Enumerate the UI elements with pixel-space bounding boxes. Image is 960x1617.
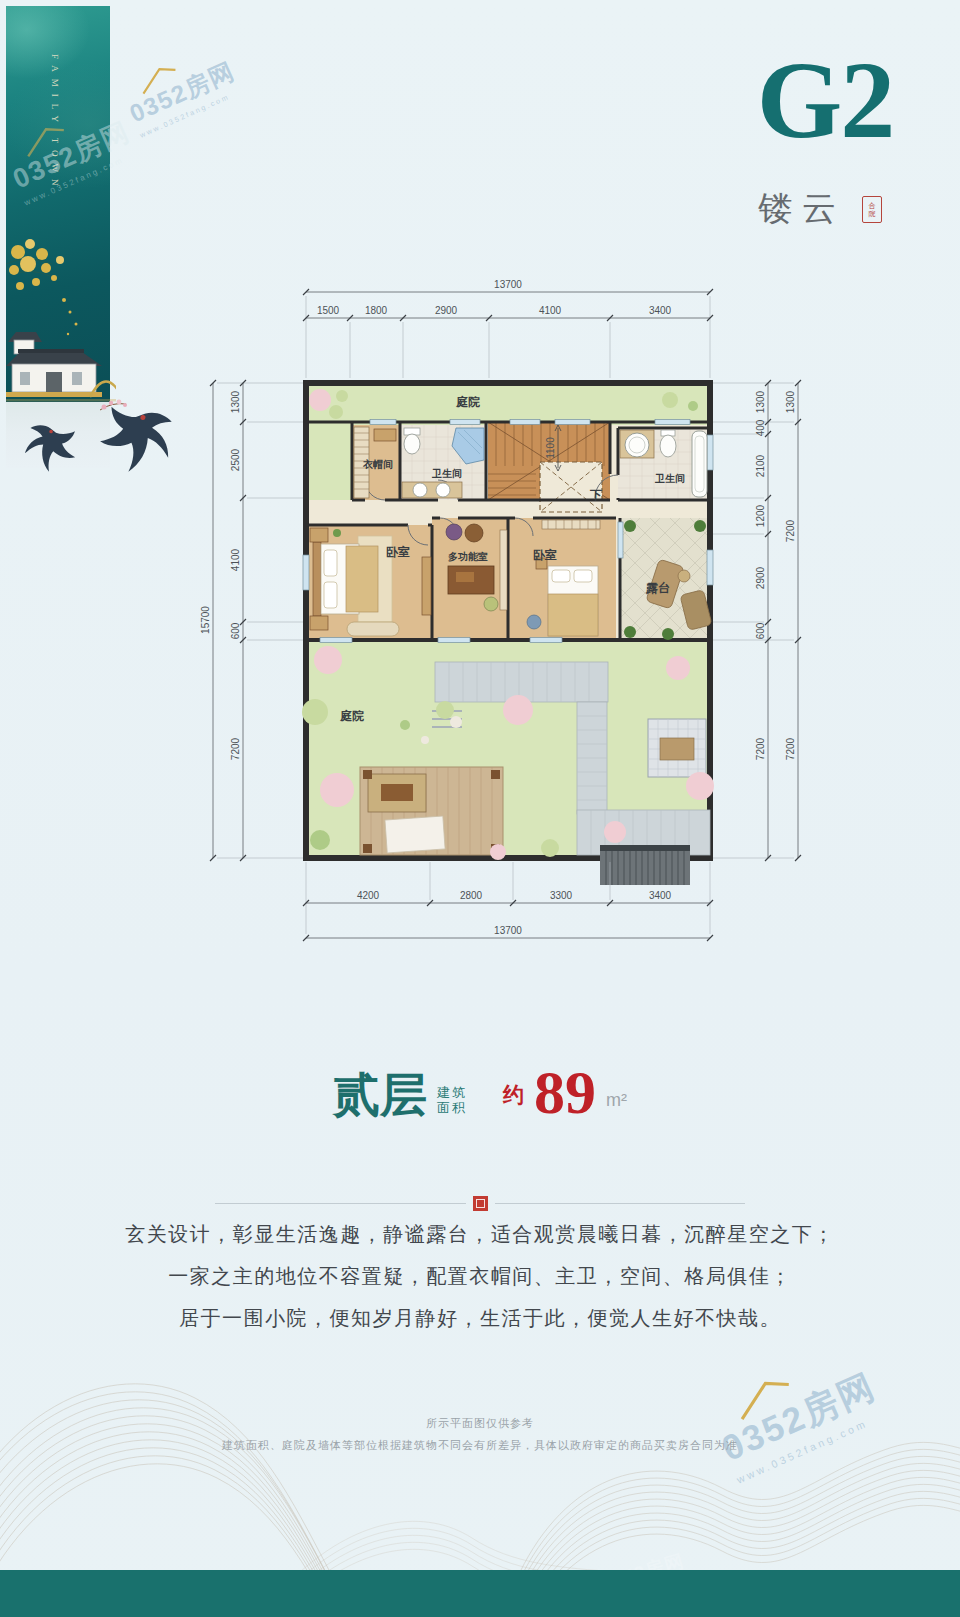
svg-text:2900: 2900 bbox=[435, 305, 458, 316]
section-divider bbox=[215, 1196, 745, 1211]
floor-label: 贰层 bbox=[333, 1073, 427, 1118]
swallow-icon bbox=[95, 403, 177, 479]
svg-text:13700: 13700 bbox=[494, 279, 522, 290]
svg-text:600: 600 bbox=[230, 622, 241, 639]
unit-name: 镂云 bbox=[758, 186, 846, 232]
swallows bbox=[8, 392, 188, 482]
svg-text:7200: 7200 bbox=[785, 737, 796, 760]
svg-text:1100: 1100 bbox=[545, 437, 556, 459]
svg-text:1500: 1500 bbox=[317, 305, 340, 316]
svg-text:2900: 2900 bbox=[755, 566, 766, 589]
stairs-down-label: 下 bbox=[589, 488, 602, 502]
svg-text:1300: 1300 bbox=[755, 390, 766, 413]
area-statement: 贰层 建筑 面积 约 89 m² bbox=[0, 1068, 960, 1118]
exterior-steps bbox=[600, 845, 690, 885]
svg-text:1300: 1300 bbox=[230, 390, 241, 413]
svg-text:2100: 2100 bbox=[755, 454, 766, 477]
description-line: 一家之主的地位不容置疑，配置衣帽间、主卫，空间、格局俱佳； bbox=[0, 1266, 960, 1287]
area-value: 89 bbox=[534, 1068, 596, 1118]
room-label-bath-right: 卫生间 bbox=[654, 473, 685, 484]
watermark-roof-icon bbox=[135, 60, 185, 96]
svg-text:7200: 7200 bbox=[785, 519, 796, 542]
room-label-courtyard-bottom: 庭院 bbox=[339, 709, 364, 723]
contour-wave-decoration bbox=[0, 1330, 960, 1572]
unit-seal: 合 院 bbox=[862, 196, 882, 223]
footer-bar bbox=[0, 1570, 960, 1617]
svg-text:4200: 4200 bbox=[357, 890, 380, 901]
svg-text:7200: 7200 bbox=[755, 737, 766, 760]
swallow-icon bbox=[23, 424, 78, 475]
svg-text:7200: 7200 bbox=[230, 737, 241, 760]
seal-char-top: 合 bbox=[869, 202, 876, 210]
room-label-cloakroom: 衣帽间 bbox=[362, 459, 393, 470]
room-label-courtyard-top: 庭院 bbox=[455, 395, 480, 409]
gold-foliage bbox=[6, 239, 78, 335]
approx-label: 约 bbox=[503, 1081, 524, 1109]
site-watermark: 0352房网 www.0352fang.com bbox=[118, 40, 244, 139]
svg-text:15700: 15700 bbox=[200, 606, 211, 634]
area-unit: m² bbox=[606, 1090, 627, 1111]
brand-banner: FAMILY TOWN bbox=[6, 6, 110, 402]
svg-text:2500: 2500 bbox=[230, 448, 241, 471]
area-type-label: 建筑 面积 bbox=[437, 1085, 467, 1115]
unit-code: G2 bbox=[745, 40, 905, 161]
room-label-multi: 多功能室 bbox=[448, 551, 488, 562]
seal-char-bottom: 院 bbox=[869, 210, 876, 218]
room-label-bedroom-left: 卧室 bbox=[386, 545, 410, 559]
svg-text:3400: 3400 bbox=[649, 305, 672, 316]
blossom-branch bbox=[100, 400, 127, 410]
banner-vertical-title: FAMILY TOWN bbox=[50, 54, 60, 193]
svg-text:1200: 1200 bbox=[755, 504, 766, 527]
svg-text:600: 600 bbox=[755, 622, 766, 639]
svg-text:400: 400 bbox=[755, 419, 766, 436]
svg-text:1300: 1300 bbox=[785, 390, 796, 413]
svg-text:3300: 3300 bbox=[550, 890, 573, 901]
svg-text:3400: 3400 bbox=[649, 890, 672, 901]
banner-art bbox=[6, 234, 116, 404]
svg-text:1800: 1800 bbox=[365, 305, 388, 316]
description-line: 居于一围小院，便知岁月静好，生活于此，便觉人生好不快哉。 bbox=[0, 1308, 960, 1329]
svg-text:4100: 4100 bbox=[230, 548, 241, 571]
room-label-bath-left: 卫生间 bbox=[431, 468, 462, 479]
flyer-page: FAMILY TOWN bbox=[0, 0, 960, 1617]
divider-seal-icon bbox=[473, 1196, 488, 1211]
description-line: 玄关设计，彰显生活逸趣，静谧露台，适合观赏晨曦日暮，沉醉星空之下； bbox=[0, 1224, 960, 1245]
svg-text:13700: 13700 bbox=[494, 925, 522, 936]
floor-plan: 13700 1500 1800 2900 4100 3400 15700 130… bbox=[200, 270, 860, 960]
svg-text:2800: 2800 bbox=[460, 890, 483, 901]
room-label-terrace: 露台 bbox=[645, 581, 670, 595]
svg-text:4100: 4100 bbox=[539, 305, 562, 316]
room-label-bedroom-right: 卧室 bbox=[533, 548, 557, 562]
